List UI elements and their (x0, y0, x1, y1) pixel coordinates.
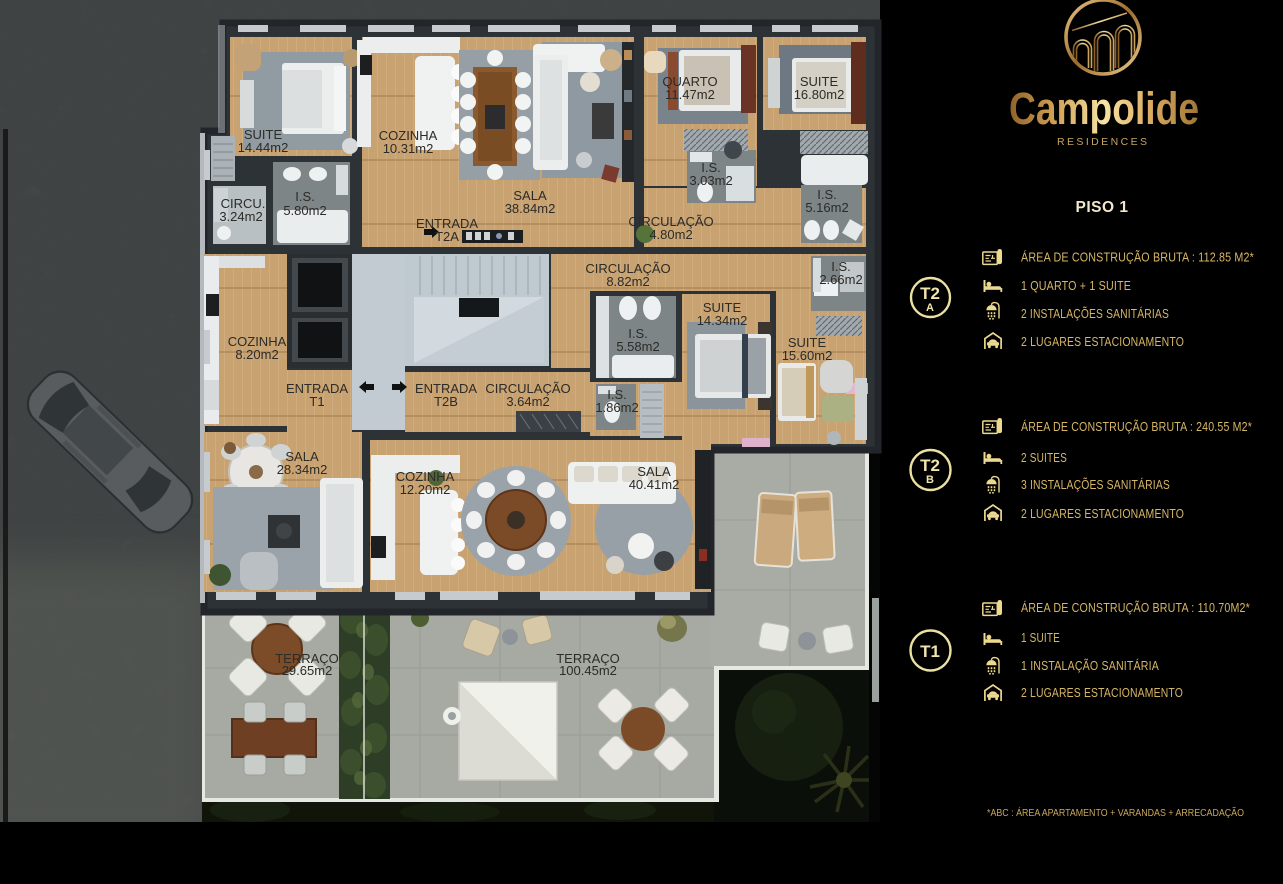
svg-text:1 SUITE: 1 SUITE (1021, 631, 1060, 645)
svg-text:ÁREA DE CONSTRUÇÃO BRUTA : 11: ÁREA DE CONSTRUÇÃO BRUTA : 110.70M2* (1021, 600, 1250, 615)
svg-text:100.45m2: 100.45m2 (559, 663, 617, 678)
svg-text:PISO 1: PISO 1 (1076, 199, 1129, 216)
svg-text:14.44m2: 14.44m2 (238, 140, 289, 155)
svg-text:8.82m2: 8.82m2 (606, 274, 649, 289)
svg-text:RESIDENCES: RESIDENCES (1057, 136, 1151, 148)
svg-text:T2: T2 (920, 284, 940, 303)
svg-text:1 INSTALAÇÃO SANITÁRIA: 1 INSTALAÇÃO SANITÁRIA (1021, 658, 1159, 673)
svg-text:28.34m2: 28.34m2 (277, 462, 328, 477)
svg-text:T2B: T2B (434, 394, 458, 409)
svg-text:I.S.: I.S. (295, 189, 315, 204)
svg-text:T1: T1 (920, 642, 940, 661)
svg-text:T2A: T2A (435, 229, 459, 244)
svg-text:A: A (926, 302, 934, 314)
svg-text:5.80m2: 5.80m2 (283, 203, 326, 218)
svg-text:5.58m2: 5.58m2 (616, 339, 659, 354)
svg-text:8.20m2: 8.20m2 (235, 347, 278, 362)
svg-text:5.16m2: 5.16m2 (805, 200, 848, 215)
svg-text:16.80m2: 16.80m2 (794, 87, 845, 102)
svg-text:Campolide: Campolide (1009, 83, 1199, 134)
svg-text:15.60m2: 15.60m2 (782, 348, 833, 363)
svg-text:14.34m2: 14.34m2 (697, 313, 748, 328)
svg-text:B: B (926, 474, 934, 486)
svg-text:ÁREA DE CONSTRUÇÃO BRUTA : 11: ÁREA DE CONSTRUÇÃO BRUTA : 112.85 M2* (1021, 250, 1254, 265)
svg-text:10.31m2: 10.31m2 (383, 141, 434, 156)
svg-text:2 INSTALAÇÕES SANITÁRIAS: 2 INSTALAÇÕES SANITÁRIAS (1021, 306, 1169, 321)
svg-text:2 LUGARES ESTACIONAMENTO: 2 LUGARES ESTACIONAMENTO (1021, 507, 1184, 521)
svg-text:3.24m2: 3.24m2 (219, 209, 262, 224)
svg-text:40.41m2: 40.41m2 (629, 477, 680, 492)
svg-text:11.47m2: 11.47m2 (665, 87, 715, 102)
svg-text:3 INSTALAÇÕES SANITÁRIAS: 3 INSTALAÇÕES SANITÁRIAS (1021, 477, 1170, 492)
svg-text:2 LUGARES ESTACIONAMENTO: 2 LUGARES ESTACIONAMENTO (1021, 686, 1183, 700)
svg-text:29.65m2: 29.65m2 (282, 663, 333, 678)
svg-text:2 SUITES: 2 SUITES (1021, 451, 1067, 465)
svg-text:2.66m2: 2.66m2 (819, 272, 862, 287)
svg-text:4.80m2: 4.80m2 (649, 227, 692, 242)
svg-text:*ABC : ÁREA APARTAMENTO + VAR: *ABC : ÁREA APARTAMENTO + VARANDAS + ARR… (987, 806, 1244, 819)
svg-text:2 LUGARES ESTACIONAMENTO: 2 LUGARES ESTACIONAMENTO (1021, 335, 1184, 349)
svg-text:T1: T1 (309, 394, 324, 409)
svg-text:1 QUARTO + 1 SUITE: 1 QUARTO + 1 SUITE (1021, 279, 1131, 293)
svg-text:38.84m2: 38.84m2 (505, 201, 556, 216)
svg-text:3.03m2: 3.03m2 (689, 173, 732, 188)
svg-text:12.20m2: 12.20m2 (400, 482, 451, 497)
svg-text:ÁREA DE CONSTRUÇÃO BRUTA : 24: ÁREA DE CONSTRUÇÃO BRUTA : 240.55 M2* (1021, 419, 1252, 434)
svg-text:T2: T2 (920, 456, 940, 475)
svg-text:3.64m2: 3.64m2 (506, 394, 549, 409)
svg-text:1.86m2: 1.86m2 (595, 400, 638, 415)
